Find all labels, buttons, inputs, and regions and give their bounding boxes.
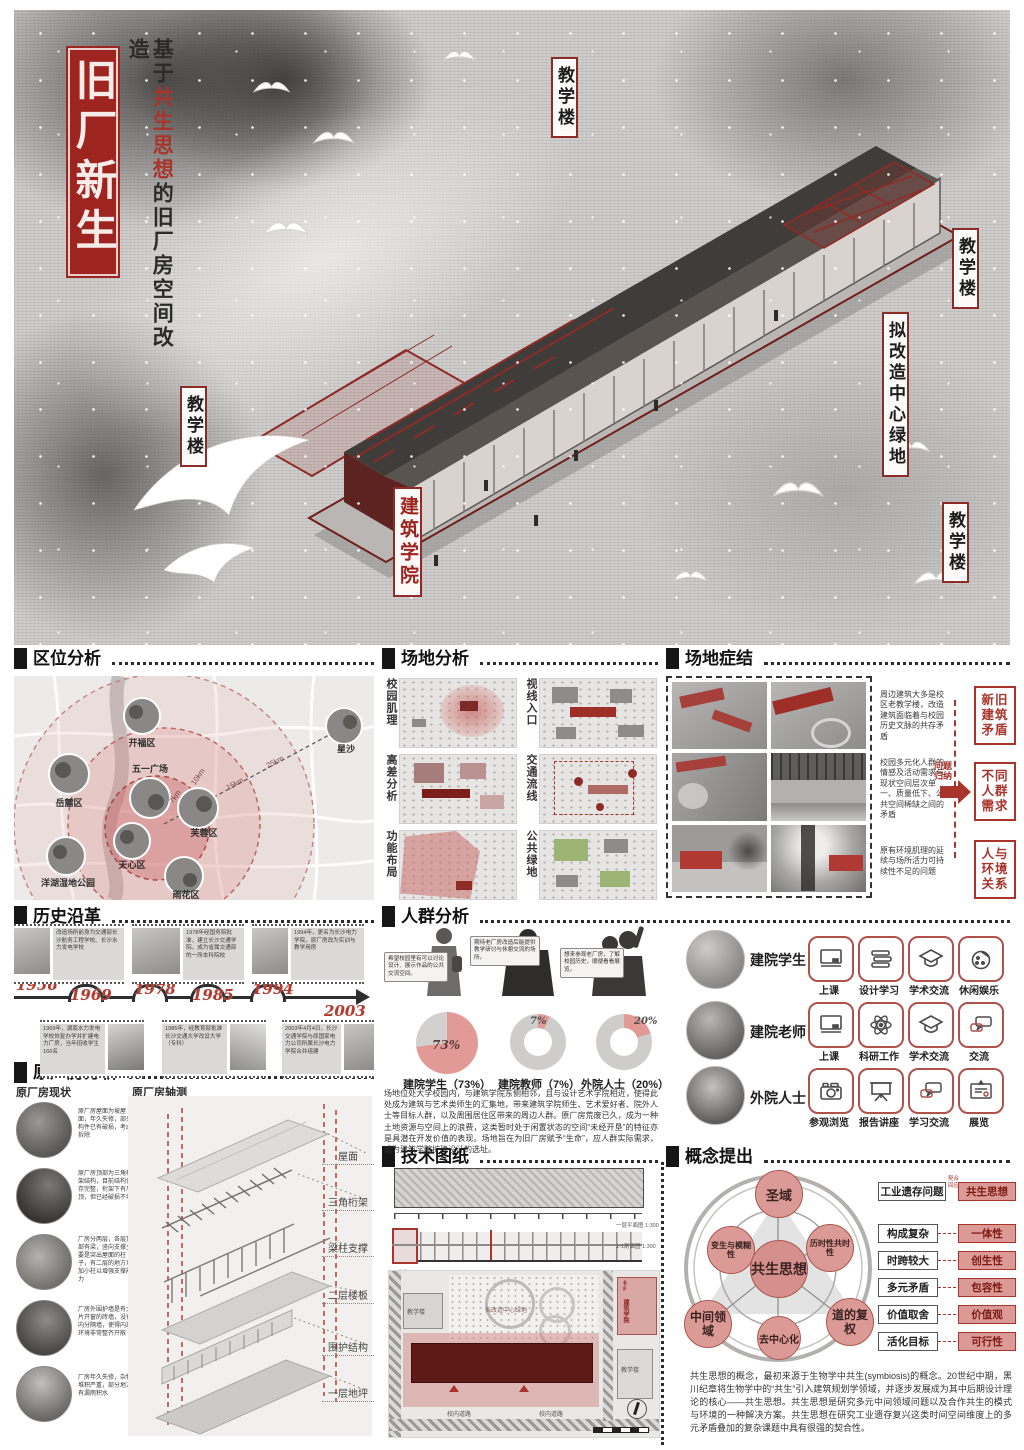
factory-photo-5 <box>16 1366 72 1422</box>
pair-right-4: 价值观 <box>958 1305 1016 1324</box>
dimension-line <box>394 1213 642 1219</box>
history-photo <box>344 1024 374 1070</box>
crowd-paragraph: 场地位处大学校园内，与建筑学院东侧相邻，且与设计艺术学院相近，使得此处成为建筑与… <box>384 1088 658 1155</box>
history-card-1994: 1994年，更名为长沙电力学院，原厂房改为实训与教学用房 <box>252 924 364 984</box>
teaching-bldg-right <box>617 1349 653 1399</box>
speech-bubble-teacher: 期待老厂房改造后能提供教学研讨与休憩交流的场所。 <box>470 936 540 966</box>
concept-node-ambiguity: 变生与模糊性 <box>707 1226 755 1274</box>
pie-visitors-hole <box>610 1028 638 1056</box>
pair-connector <box>938 1233 956 1234</box>
speech-bubble-student: 希望校园里有可以讨论设计、展示作品的公共交流空间。 <box>384 952 448 982</box>
concept-node-diachronic: 历时性共时性 <box>806 1224 854 1272</box>
factory-note-4: 厂房外围护墙是有大片开窗的砖墙，没有内分隔墙，使得内部环境非常整齐开敞 <box>78 1306 132 1338</box>
pair-connector <box>938 1287 956 1288</box>
site-map-campus-texture: 校园肌理 <box>382 678 517 748</box>
site-map-label: 交通流线 <box>522 754 536 824</box>
history-card-1956: 改造场所前身为交通部长沙航务工程学校、长沙水力发电学校 <box>14 924 124 984</box>
svg-text:洋湖湿地公园: 洋湖湿地公园 <box>41 877 95 888</box>
pair-right-3: 包容性 <box>958 1278 1016 1297</box>
history-text: 2003年4月4日，长沙交通学院与原国家电力公司所属长沙电力学院合并组建 <box>282 1024 341 1074</box>
activity-label: 学术交流 <box>905 1048 953 1063</box>
history-card-1969: 1969年，湖南水力发电学校恢复办学并扩建电力厂房，当年招收学生160名 <box>40 1020 144 1078</box>
teaching-label-2: 教学楼 <box>621 1365 639 1374</box>
pair-left-2: 时跨较大 <box>878 1251 938 1270</box>
group-photo-teachers <box>686 1001 745 1060</box>
factory-photo-3 <box>16 1234 72 1290</box>
hero-rendering: 旧厂新生 基于共生思想的旧厂房空间改造 教学楼 教学楼 拟改造中心绿地 教学楼 … <box>14 10 1010 645</box>
entry-arrow <box>449 1385 459 1392</box>
column-divider-dotted <box>661 1162 664 1445</box>
road-band-left <box>389 1271 401 1437</box>
svg-text:雨花区: 雨花区 <box>172 889 199 900</box>
axon-label-columns: 梁柱支撑 <box>322 1240 374 1257</box>
concept-node-decentral: 去中心化 <box>757 1316 801 1360</box>
header-location: 区位分析 <box>14 648 374 669</box>
site-map-label: 公共绿地 <box>522 830 536 900</box>
activity-label: 科研工作 <box>855 1048 903 1063</box>
subtitle-keyword: 共生思想 <box>150 86 175 182</box>
axon-label-ground: 一层地坪 <box>322 1385 374 1402</box>
pair-right-5: 可行性 <box>958 1332 1016 1351</box>
board-icon <box>808 936 854 982</box>
history-photo <box>108 1024 144 1070</box>
road-label-1: 校内道路 <box>447 1409 471 1418</box>
graduation-cap-icon <box>908 936 954 982</box>
factory-note-5: 厂房年久失修，杂物堆积严重，部分地方有漏雨积水 <box>78 1374 132 1398</box>
svg-text:天心区: 天心区 <box>118 860 145 870</box>
pair-right-2: 创生性 <box>958 1251 1016 1270</box>
block-arrow-head <box>958 780 971 804</box>
pair-left-4: 价值取舍 <box>878 1305 938 1324</box>
label-teaching-building-3: 教学楼 <box>180 386 207 467</box>
activity-label: 设计学习 <box>855 982 903 997</box>
pie-teachers-pct: 7% <box>530 1016 546 1027</box>
history-card-2003: 2003年4月4日，长沙交通学院与原国家电力公司所属长沙电力学院合并组建 <box>282 1020 374 1078</box>
history-photo <box>230 1024 266 1070</box>
road-band-right <box>603 1271 613 1421</box>
site-map-public-green: 公共绿地 <box>522 830 657 900</box>
header-square <box>382 648 395 669</box>
college-label: 6F 建筑学院 <box>621 1281 630 1323</box>
dotted-leader <box>480 1160 658 1163</box>
pair-right-1: 一体性 <box>958 1224 1016 1243</box>
poster-subtitle: 基于共生思想的旧厂房空间改造 <box>126 38 174 368</box>
history-photo <box>252 928 288 974</box>
concept-node-sacred: 圣域 <box>755 1170 803 1218</box>
history-text: 1969年，湖南水力发电学校恢复办学并扩建电力厂房，当年招收学生160名 <box>40 1024 105 1074</box>
location-map-svg: 开福区 五一广场 岳麓区 芙蓉区 天心区 洋湖湿地公园 雨花区 星沙 7km 1… <box>14 676 374 900</box>
chat-icon <box>958 1002 1004 1048</box>
problem-connector <box>954 700 956 858</box>
svg-text:开福区: 开福区 <box>128 737 155 748</box>
history-photo <box>132 928 180 974</box>
group-photo-students <box>686 930 745 989</box>
activity-label: 参观浏览 <box>805 1114 853 1129</box>
floor-plan-drawing <box>394 1168 644 1208</box>
teaching-label-1: 教学楼 <box>407 1307 425 1316</box>
problem-note-1: 周边建筑大多是校区老教学楼，改造建筑面临着与校园历史文脉的共存矛盾 <box>880 690 950 742</box>
header-square <box>666 648 679 669</box>
site-map-label: 校园肌理 <box>382 678 396 748</box>
certificate-icon <box>958 1068 1004 1114</box>
history-timeline: 1956 1969 1978 1985 1994 2003 改造场所前身为交通部… <box>14 924 374 1064</box>
pie-visitors-pct: 20% <box>634 1016 657 1027</box>
chat-icon <box>908 1068 954 1114</box>
site-map-label: 高差分析 <box>382 754 396 824</box>
activity-label: 报告讲座 <box>855 1114 903 1129</box>
history-card-1978: 1978年经国务院批准，建立长沙交通学院，成为省属交通部的一所本科院校 <box>132 924 244 984</box>
factory-note-1: 原厂房屋面为坡屋面，年久失修，部分构件已有破损，考虑拆除 <box>78 1108 132 1140</box>
svg-text:五一广场: 五一广场 <box>132 763 168 774</box>
header-square <box>14 1062 27 1083</box>
header-site-analysis: 场地分析 <box>382 648 658 669</box>
year-1985: 1985 <box>192 986 234 1004</box>
photo-aerial-1 <box>672 682 767 749</box>
header-square <box>14 648 27 669</box>
scale-bar <box>593 1427 649 1433</box>
label-teaching-building-2: 教学楼 <box>952 228 979 309</box>
location-map: 开福区 五一广场 岳麓区 芙蓉区 天心区 洋湖湿地公园 雨花区 星沙 7km 1… <box>14 676 374 900</box>
result-box-3: 人与环境关系 <box>974 840 1016 899</box>
label-teaching-building-1: 教学楼 <box>551 57 578 138</box>
label-central-green: 拟改造中心绿地 <box>882 312 909 477</box>
section-caption: 1-1剖面图 1:300 <box>616 1242 660 1250</box>
result-box-2: 不同人群需求 <box>974 762 1016 821</box>
concept-to-box: 共生思想 <box>958 1182 1016 1201</box>
pair-connector <box>938 1260 956 1261</box>
timeline-line <box>14 996 358 999</box>
activity-label: 学习交流 <box>905 1114 953 1129</box>
label-teaching-building-4: 教学楼 <box>942 502 969 583</box>
factory-photo-2 <box>16 1168 72 1224</box>
year-1969: 1969 <box>70 986 112 1004</box>
factory-note-2: 原厂房顶部为三角桁架结构，目前结构保存完整，桁架下有吊顶，但已经破损不堪 <box>78 1170 132 1202</box>
poster-title: 旧厂新生 <box>66 46 120 278</box>
courtyard-ring <box>485 1279 535 1329</box>
pair-connector <box>938 1314 956 1315</box>
concept-node-intermediate: 中间领域 <box>684 1300 732 1348</box>
svg-text:岳麓区: 岳麓区 <box>55 797 82 808</box>
presentation-icon <box>858 1068 904 1114</box>
header-site-problems: 场地症结 <box>666 648 1010 669</box>
axon-label-slab: 二层楼板 <box>322 1287 374 1304</box>
plan-caption: 一层平面图 1:300 <box>616 1221 660 1229</box>
activity-label: 上课 <box>805 982 853 997</box>
history-text: 1994年，更名为长沙电力学院，原厂房改为实训与教学用房 <box>291 928 364 980</box>
subtitle-prefix: 基于 <box>150 38 175 86</box>
group-name-visitors: 外院人士 <box>750 1088 806 1108</box>
activity-label: 学术交流 <box>905 982 953 997</box>
concept-node-center: 共生思想 <box>750 1240 808 1298</box>
arrow-label: 问题归纳 <box>933 762 953 782</box>
activity-label: 展览 <box>955 1114 1003 1129</box>
pair-left-3: 多元矛盾 <box>878 1278 938 1297</box>
site-map-function-layout: 功能布局 <box>382 830 517 900</box>
road-label-2: 校内道路 <box>539 1409 563 1418</box>
group-photo-visitors <box>686 1066 745 1125</box>
factory-photo-4 <box>16 1300 72 1356</box>
label-architecture-college: 建筑学院 <box>393 487 422 597</box>
axon-label-roof: 屋面 <box>322 1148 374 1165</box>
graduation-cap-icon <box>908 1002 954 1048</box>
photo-backlit <box>771 825 866 892</box>
site-map-traffic-flow: 交通流线 <box>522 754 657 824</box>
group-name-students: 建院学生 <box>750 950 806 970</box>
north-compass <box>627 1399 647 1419</box>
pair-left-5: 活化目标 <box>878 1332 938 1351</box>
site-problem-photos <box>666 676 872 898</box>
photo-street <box>672 825 767 892</box>
history-text: 改造场所前身为交通部长沙航务工程学校、长沙水力发电学校 <box>53 928 124 980</box>
history-photo <box>14 928 50 974</box>
pizza-icon <box>958 936 1004 982</box>
factory-note-3: 厂房分两层，各层顶部有梁，竖向支撑主要是突出屋面的柱子，有二层的地方增加小柱以增… <box>78 1236 132 1285</box>
photo-aerial-2 <box>771 682 866 749</box>
photo-interior <box>771 753 866 820</box>
board-icon <box>808 1002 854 1048</box>
history-card-1985: 1985年，经教育部批准长沙交通大学改设大学（专科） <box>162 1020 266 1078</box>
activity-label: 交流 <box>955 1048 1003 1063</box>
pie-teachers-hole <box>524 1028 552 1056</box>
concept-paragraph: 共生思想的概念，最初来源于生物学中共生(symbiosis)的概念。20世纪中期… <box>690 1370 1012 1435</box>
pie-students-pct: 73% <box>432 1038 460 1052</box>
site-map-label: 功能布局 <box>382 830 396 900</box>
history-text: 1985年，经教育部批准长沙交通大学改设大学（专科） <box>162 1024 227 1074</box>
elevation-drawing <box>392 1232 642 1262</box>
result-box-1: 新旧建筑矛盾 <box>974 686 1016 745</box>
concept-from-box: 工业遗存问题 <box>878 1182 946 1201</box>
entry-arrow <box>519 1385 529 1392</box>
svg-text:星沙: 星沙 <box>337 744 355 754</box>
dotted-leader <box>764 662 1010 665</box>
group-name-teachers: 建院老师 <box>750 1022 806 1042</box>
svg-text:芙蓉区: 芙蓉区 <box>189 827 217 838</box>
axon-label-truss: 三角桁架 <box>322 1194 374 1211</box>
speech-bubble-visitor: 想来参观老厂房，了解校园历史，顺便看看展览。 <box>560 948 624 978</box>
green-label: 拟改造中心绿地 <box>485 1305 527 1314</box>
activity-label: 上课 <box>805 1048 853 1063</box>
activity-label: 休闲娱乐 <box>955 982 1003 997</box>
atom-icon <box>858 1002 904 1048</box>
dotted-leader <box>112 920 374 923</box>
photo-aerial-3 <box>672 753 767 820</box>
dotted-leader <box>480 662 658 665</box>
camera-icon <box>808 1068 854 1114</box>
year-2003: 2003 <box>324 1002 366 1020</box>
site-map-label: 视线入口 <box>522 678 536 748</box>
problem-note-3: 原有环境肌理的延续与场所活力可持续性不足的问题 <box>880 846 950 877</box>
dotted-leader <box>112 662 374 665</box>
books-icon <box>858 936 904 982</box>
pair-connector <box>938 1341 956 1342</box>
factory-left-title: 原厂房现状 <box>16 1084 71 1100</box>
history-text: 1978年经国务院批准，建立长沙交通学院，成为省属交通部的一所本科院校 <box>183 928 244 980</box>
axon-label-envelope: 围护结构 <box>322 1339 374 1356</box>
site-map-level-difference: 高差分析 <box>382 754 517 824</box>
header-square <box>666 1146 679 1167</box>
pair-left-1: 构成复杂 <box>878 1224 938 1243</box>
factory-building-footprint <box>411 1343 593 1383</box>
concept-node-street: 道的复权 <box>826 1298 874 1346</box>
site-plan: 拟改造中心绿地 教学楼 6F 建筑学院 教学楼 校内道路 校内道路 <box>388 1270 660 1438</box>
site-map-sight-entrance: 视线入口 <box>522 678 657 748</box>
factory-photo-1 <box>16 1102 72 1158</box>
block-arrow <box>940 786 958 798</box>
